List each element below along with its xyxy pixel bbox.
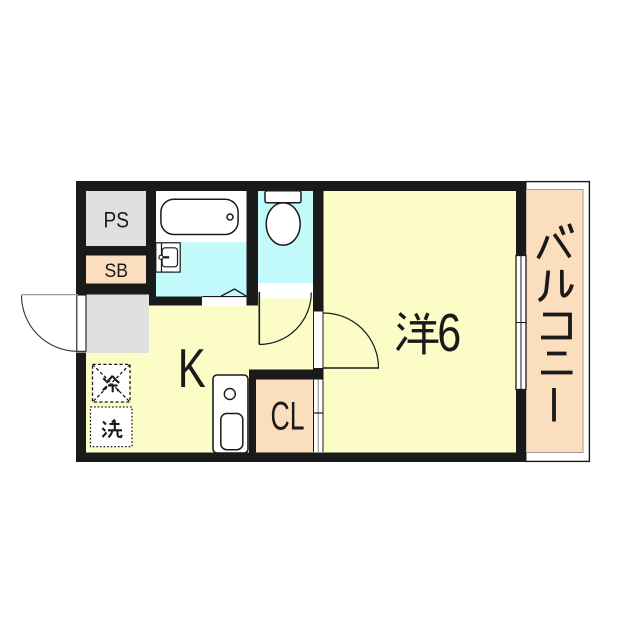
svg-text:6: 6 [437, 303, 461, 363]
svg-text:PS: PS [104, 208, 130, 233]
svg-text:SB: SB [105, 261, 129, 282]
svg-text:CL: CL [271, 394, 305, 438]
svg-text:K: K [178, 337, 206, 399]
